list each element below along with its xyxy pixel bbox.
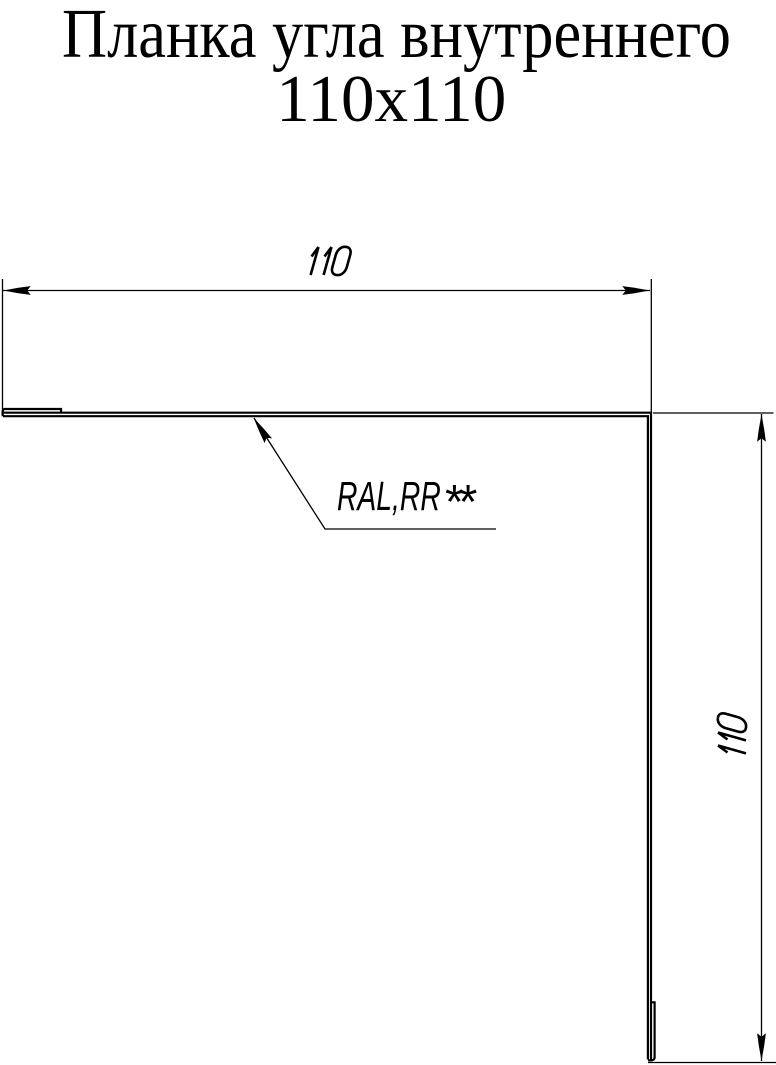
svg-text:110х110: 110х110 [276, 62, 506, 136]
svg-text:RAL,RR: RAL,RR [337, 474, 441, 519]
